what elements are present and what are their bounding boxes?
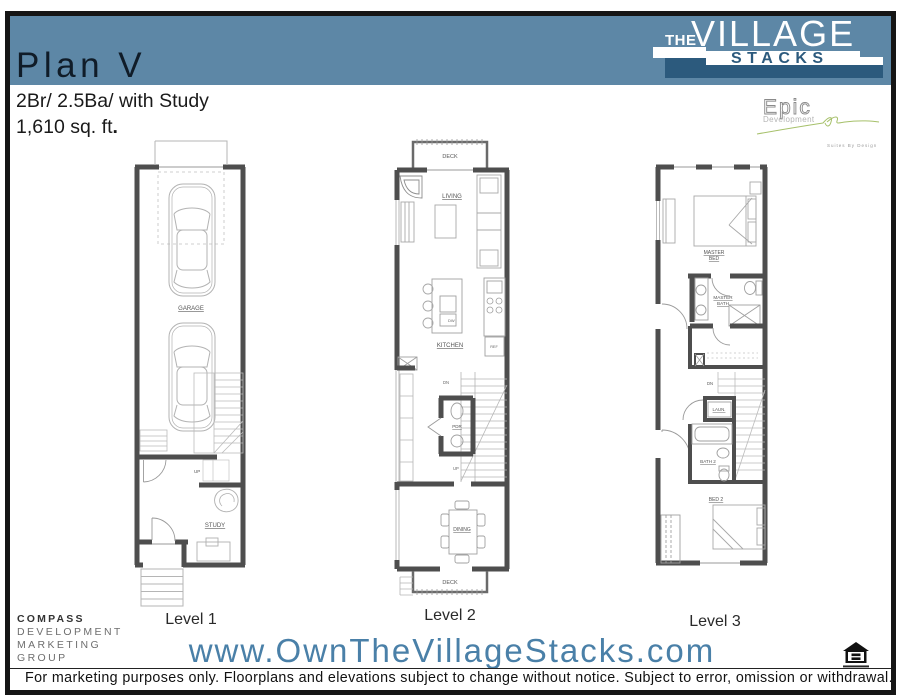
svg-text:UP: UP — [194, 469, 200, 474]
svg-text:BED 2: BED 2 — [709, 497, 724, 503]
svg-text:LIVING: LIVING — [442, 194, 462, 200]
svg-text:KITCHEN: KITCHEN — [437, 343, 463, 349]
svg-text:STUDY: STUDY — [205, 523, 225, 529]
svg-text:GARAGE: GARAGE — [178, 306, 204, 312]
svg-text:REF: REF — [490, 345, 498, 349]
svg-text:BATH: BATH — [717, 301, 729, 306]
svg-text:DECK: DECK — [442, 580, 458, 586]
svg-text:DINING: DINING — [453, 527, 471, 533]
svg-text:PDR: PDR — [452, 424, 462, 429]
svg-text:DN: DN — [707, 381, 713, 386]
svg-text:UP: UP — [453, 466, 459, 471]
svg-text:BED: BED — [709, 256, 720, 262]
svg-text:DECK: DECK — [442, 154, 458, 160]
svg-text:MASTER: MASTER — [713, 295, 733, 300]
svg-text:DW: DW — [448, 318, 455, 323]
svg-text:DN: DN — [443, 380, 449, 385]
svg-text:BATH 2: BATH 2 — [700, 459, 716, 464]
svg-text:Suites By Design: Suites By Design — [827, 143, 877, 148]
svg-text:LAUN.: LAUN. — [713, 407, 726, 412]
svg-text:Development: Development — [763, 115, 815, 124]
